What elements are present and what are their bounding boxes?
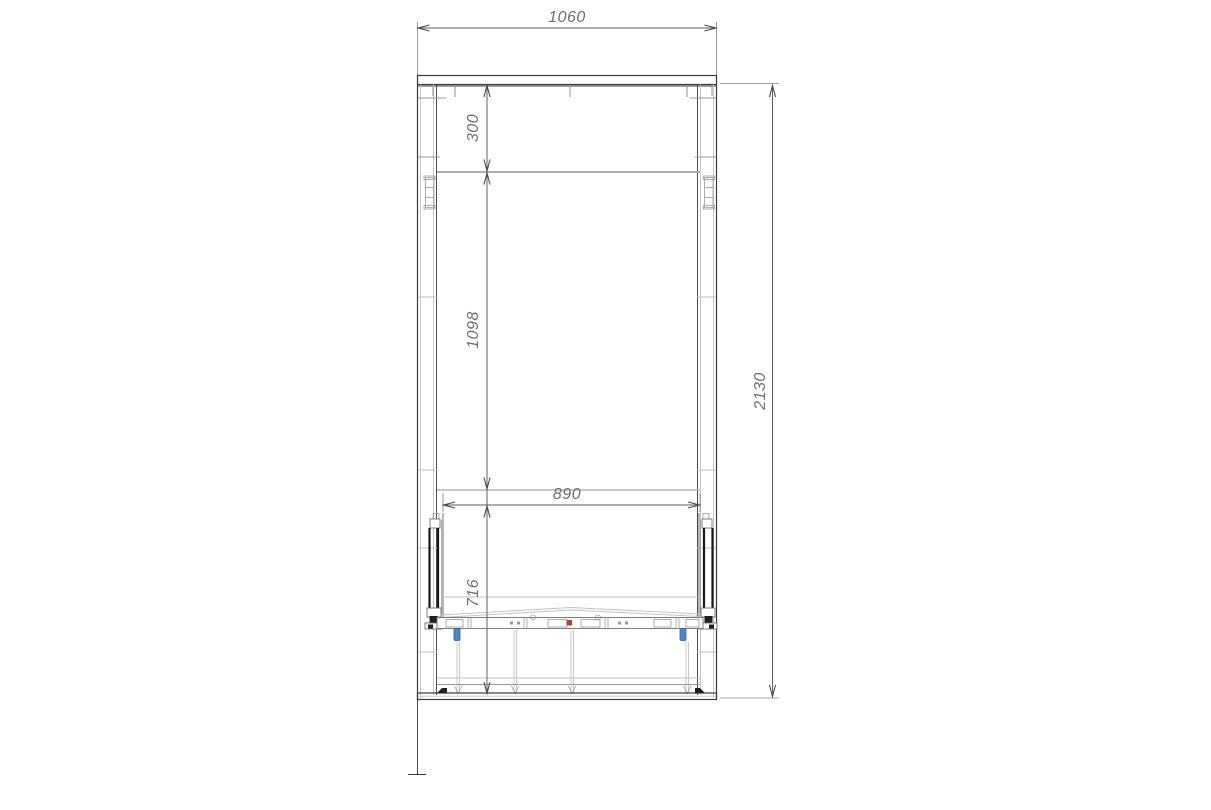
dim-label-overall-width: 1060 (548, 9, 586, 26)
dim-label-overall-height: 2130 (752, 372, 769, 411)
red-lock-indicator (567, 620, 573, 626)
technical-drawing: 1060 2130 300 1098 716 890 (0, 0, 1211, 810)
dim-label-lower-section-height: 716 (465, 579, 482, 607)
right-lift-rail (700, 514, 717, 630)
dimension-overall-height: 2130 (720, 84, 779, 699)
right-release-pin (680, 629, 686, 641)
dim-label-top-offset: 300 (465, 114, 482, 142)
dimension-overall-width: 1060 (418, 9, 717, 75)
floor-datum-line (408, 700, 426, 775)
drawing-canvas: 1060 2130 300 1098 716 890 (0, 0, 1211, 810)
cabinet-bottom-panel (418, 678, 717, 700)
top-dowel-ticks (433, 85, 712, 97)
bottom-mechanism-bar (437, 615, 703, 641)
cabinet-top-panel (418, 76, 717, 87)
dimension-vertical-chain: 300 1098 716 (465, 85, 490, 694)
right-foot-bracket (695, 688, 705, 693)
right-hinge-bracket (704, 176, 715, 209)
dim-label-inner-width: 890 (553, 486, 581, 503)
dim-label-opening-height: 1098 (465, 311, 482, 349)
left-foot-bracket (437, 688, 447, 693)
panel-connector-ticks (418, 98, 716, 652)
left-release-pin (454, 629, 460, 641)
